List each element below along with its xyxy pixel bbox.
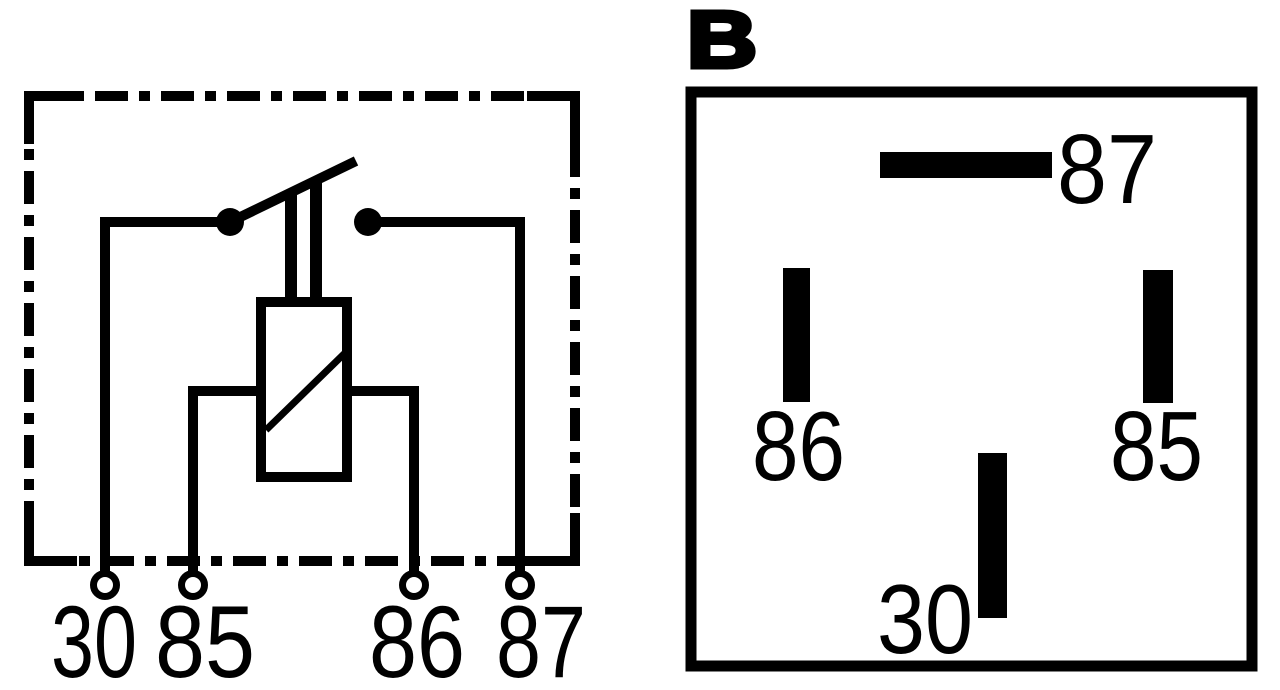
relay-schematic: 30 85 86 87 — [29, 96, 586, 690]
relay-diagram-page: 30 85 86 87 B 87 86 85 30 — [0, 0, 1280, 690]
switch-fixed-contact-icon — [354, 208, 382, 236]
pin-blade-30-icon — [978, 453, 1007, 618]
wire-terminal-85 — [193, 391, 256, 572]
pin-blade-86-icon — [783, 268, 810, 402]
enclosure-corner-top-right-icon — [527, 96, 575, 144]
enclosure-corner-bottom-right-icon — [527, 513, 575, 561]
pin-label-86: 86 — [752, 391, 845, 501]
wire-terminal-86 — [352, 391, 414, 572]
relay-diagram-canvas: 30 85 86 87 B 87 86 85 30 — [0, 0, 1280, 690]
pin-blade-85-icon — [1143, 270, 1173, 403]
terminal-label-86: 86 — [369, 585, 465, 690]
terminal-label-87: 87 — [496, 585, 586, 690]
terminal-label-85: 85 — [155, 585, 255, 690]
wire-terminal-30 — [105, 222, 230, 572]
terminal-label-30: 30 — [51, 585, 137, 690]
pin-layout-title: B — [687, 0, 757, 84]
pin-label-85: 85 — [1110, 391, 1203, 501]
pin-label-30: 30 — [877, 564, 973, 674]
wire-terminal-87 — [368, 222, 520, 572]
pin-layout: B 87 86 85 30 — [687, 0, 1252, 674]
enclosure-corner-top-left-icon — [29, 96, 77, 144]
enclosure-corner-bottom-left-icon — [29, 513, 77, 561]
pin-blade-87-icon — [880, 152, 1052, 178]
pin-label-87: 87 — [1057, 114, 1157, 224]
